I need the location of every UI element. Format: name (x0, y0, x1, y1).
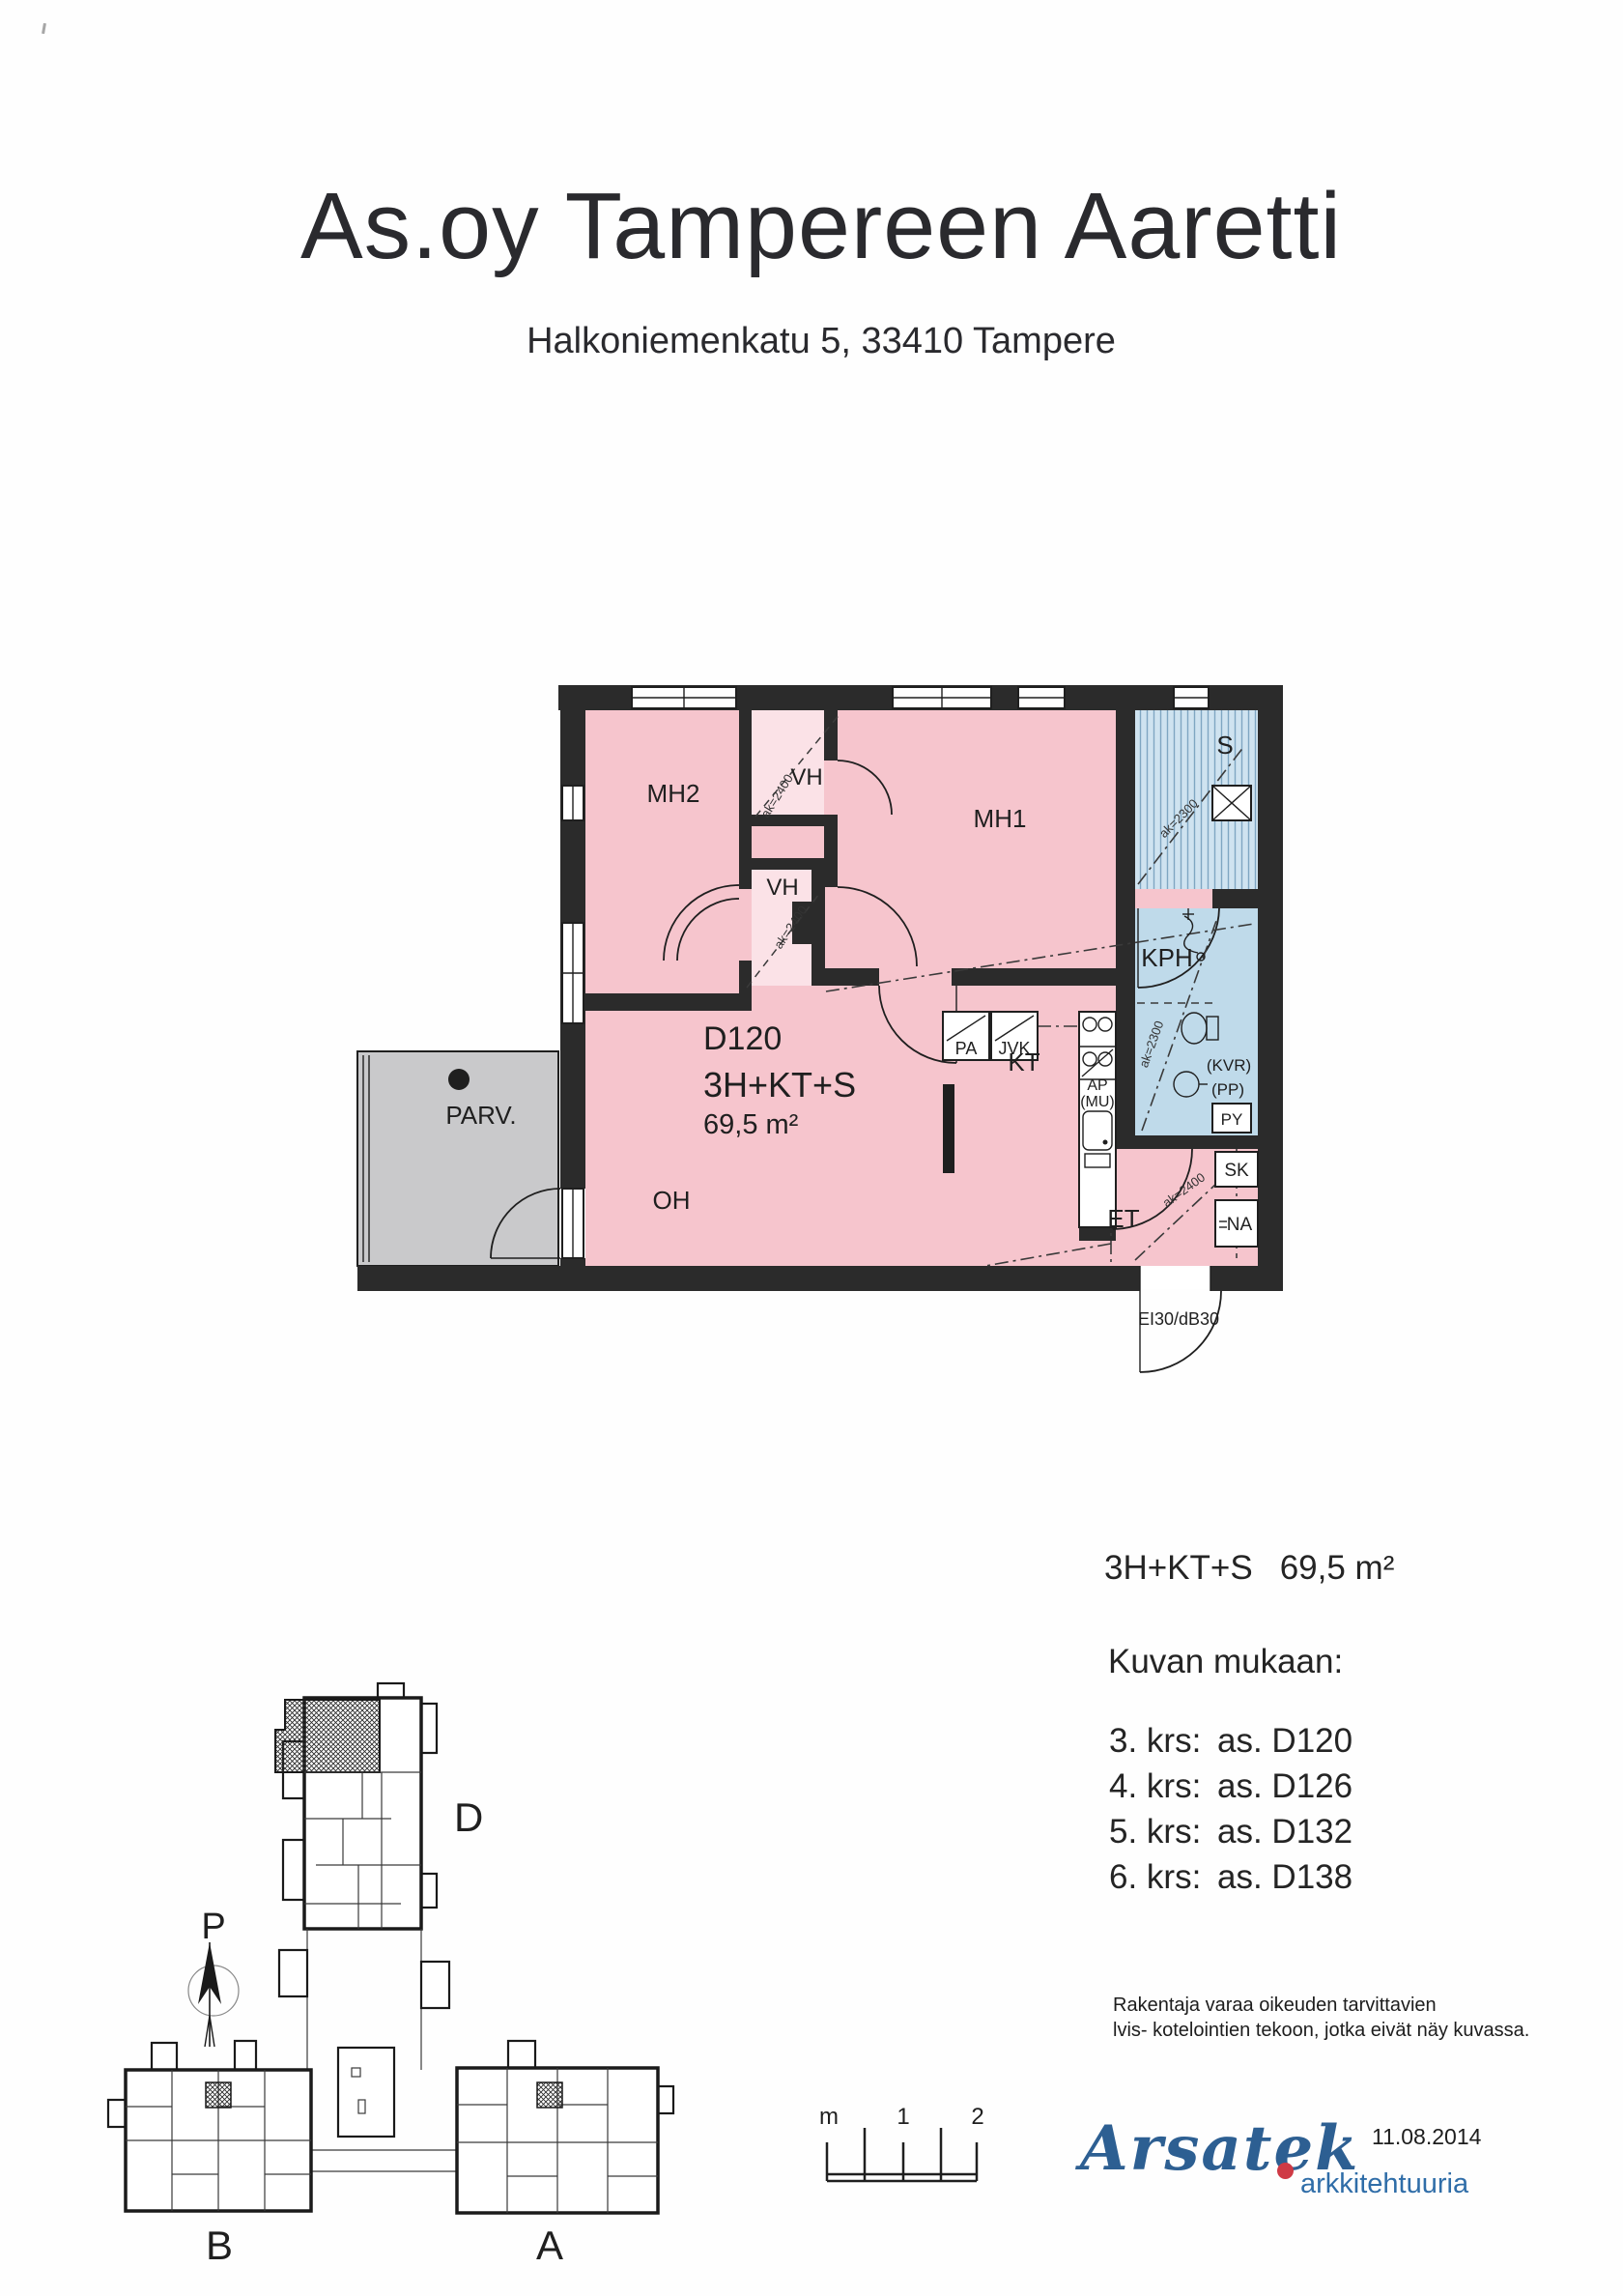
list-heading: Kuvan mukaan: (1108, 1643, 1343, 1681)
logo-tagline: arkkitehtuuria (1300, 2168, 1468, 2200)
label-jvk: JVK (998, 1039, 1030, 1058)
apartment-number: as. D120 (1217, 1722, 1352, 1761)
label-pp: (PP) (1211, 1080, 1244, 1099)
window-mh2-top (632, 687, 736, 708)
balcony (357, 1051, 558, 1266)
label-ap: AP (1087, 1077, 1107, 1094)
summary-area: 69,5 m² (1280, 1549, 1395, 1588)
floor-number: 4. krs: (1109, 1767, 1217, 1806)
window-oh-left (562, 923, 584, 1023)
label-parv: PARV. (445, 1101, 516, 1130)
label-py: PY (1221, 1110, 1243, 1129)
window-mh1-top (893, 687, 991, 708)
stairwell-b (206, 2082, 231, 2108)
label-door-rating: EI30/dB30 (1138, 1309, 1219, 1329)
label-na: NA (1227, 1215, 1253, 1235)
apartment-number: as. D126 (1217, 1767, 1352, 1806)
label-unit-type: 3H+KT+S (703, 1065, 856, 1105)
floor-number: 6. krs: (1109, 1858, 1217, 1897)
floor-row: 6. krs: as. D138 (1109, 1858, 1352, 1904)
label-wing-d: D (454, 1794, 483, 1840)
label-et: ET (1107, 1204, 1139, 1233)
scale-bar: m 1 2 (811, 2092, 1005, 2194)
floor-row: 5. krs: as. D132 (1109, 1813, 1352, 1858)
scale-two: 2 (971, 2104, 983, 2130)
kitchen-counter (1079, 1012, 1116, 1227)
label-vh2: VH (766, 875, 798, 901)
highlighted-apartment (275, 1700, 380, 1772)
page-subtitle: Halkoniemenkatu 5, 33410 Tampere (0, 321, 1623, 362)
apartment-number: as. D132 (1217, 1813, 1352, 1851)
scan-artifact (42, 23, 46, 34)
page-title: As.oy Tampereen Aaretti (0, 172, 1623, 280)
builder-disclaimer: Rakentaja varaa oikeuden tarvittavien lv… (1113, 1993, 1529, 2044)
scale-unit: m (819, 2104, 839, 2130)
apartment-number: as. D138 (1217, 1858, 1352, 1897)
floor-number: 5. krs: (1109, 1813, 1217, 1851)
label-mu: (MU) (1080, 1094, 1115, 1110)
label-sk: SK (1224, 1161, 1249, 1181)
window-sauna-top (1174, 687, 1209, 708)
label-unit-id: D120 (703, 1020, 782, 1057)
label-mh2: MH2 (647, 779, 700, 808)
label-wing-a: A (536, 2223, 563, 2268)
disclaimer-line-1: Rakentaja varaa oikeuden tarvittavien (1113, 1993, 1529, 2018)
label-sauna: S (1216, 731, 1233, 760)
room-vh1-floor (752, 710, 824, 815)
kitchen-island-wall (943, 1084, 954, 1173)
floor-number: 3. krs: (1109, 1722, 1217, 1761)
floor-row: 4. krs: as. D126 (1109, 1767, 1352, 1813)
floor-plan: MH2 MH1 VH VH S KPH KT OH ET PARV. D120 … (319, 609, 1304, 1392)
document-date: 11.08.2014 (1372, 2124, 1481, 2150)
label-kvr: (KVR) (1207, 1056, 1251, 1075)
label-oh: OH (653, 1186, 691, 1215)
window-mh1-top-small (1018, 687, 1065, 708)
logo-dot-icon (1277, 2163, 1294, 2179)
apartment-summary: 3H+KT+S 69,5 m² (1104, 1549, 1394, 1588)
label-vh1: VH (790, 764, 822, 790)
wing-a (457, 2041, 673, 2213)
stairwell-a (537, 2082, 562, 2108)
window-mh2-left (562, 786, 584, 820)
label-wing-b: B (206, 2223, 233, 2268)
label-pa: PA (955, 1039, 978, 1058)
summary-type: 3H+KT+S (1104, 1549, 1253, 1588)
wing-d (275, 1683, 437, 1929)
disclaimer-line-2: lvis- kotelointien tekoon, jotka eivät n… (1113, 2018, 1529, 2043)
north-label: P (201, 1907, 225, 1947)
north-arrow: P (188, 1907, 239, 2047)
site-plan: P D B A (72, 1594, 681, 2271)
scale-one: 1 (897, 2104, 909, 2130)
balcony-drain-dot (448, 1069, 470, 1090)
floor-row: 3. krs: as. D120 (1109, 1722, 1352, 1767)
floor-list: 3. krs: as. D120 4. krs: as. D126 5. krs… (1109, 1722, 1352, 1904)
wing-b (108, 2041, 311, 2211)
label-kph: KPH (1141, 943, 1192, 972)
label-mh1: MH1 (974, 804, 1027, 833)
label-unit-area: 69,5 m² (703, 1109, 799, 1140)
